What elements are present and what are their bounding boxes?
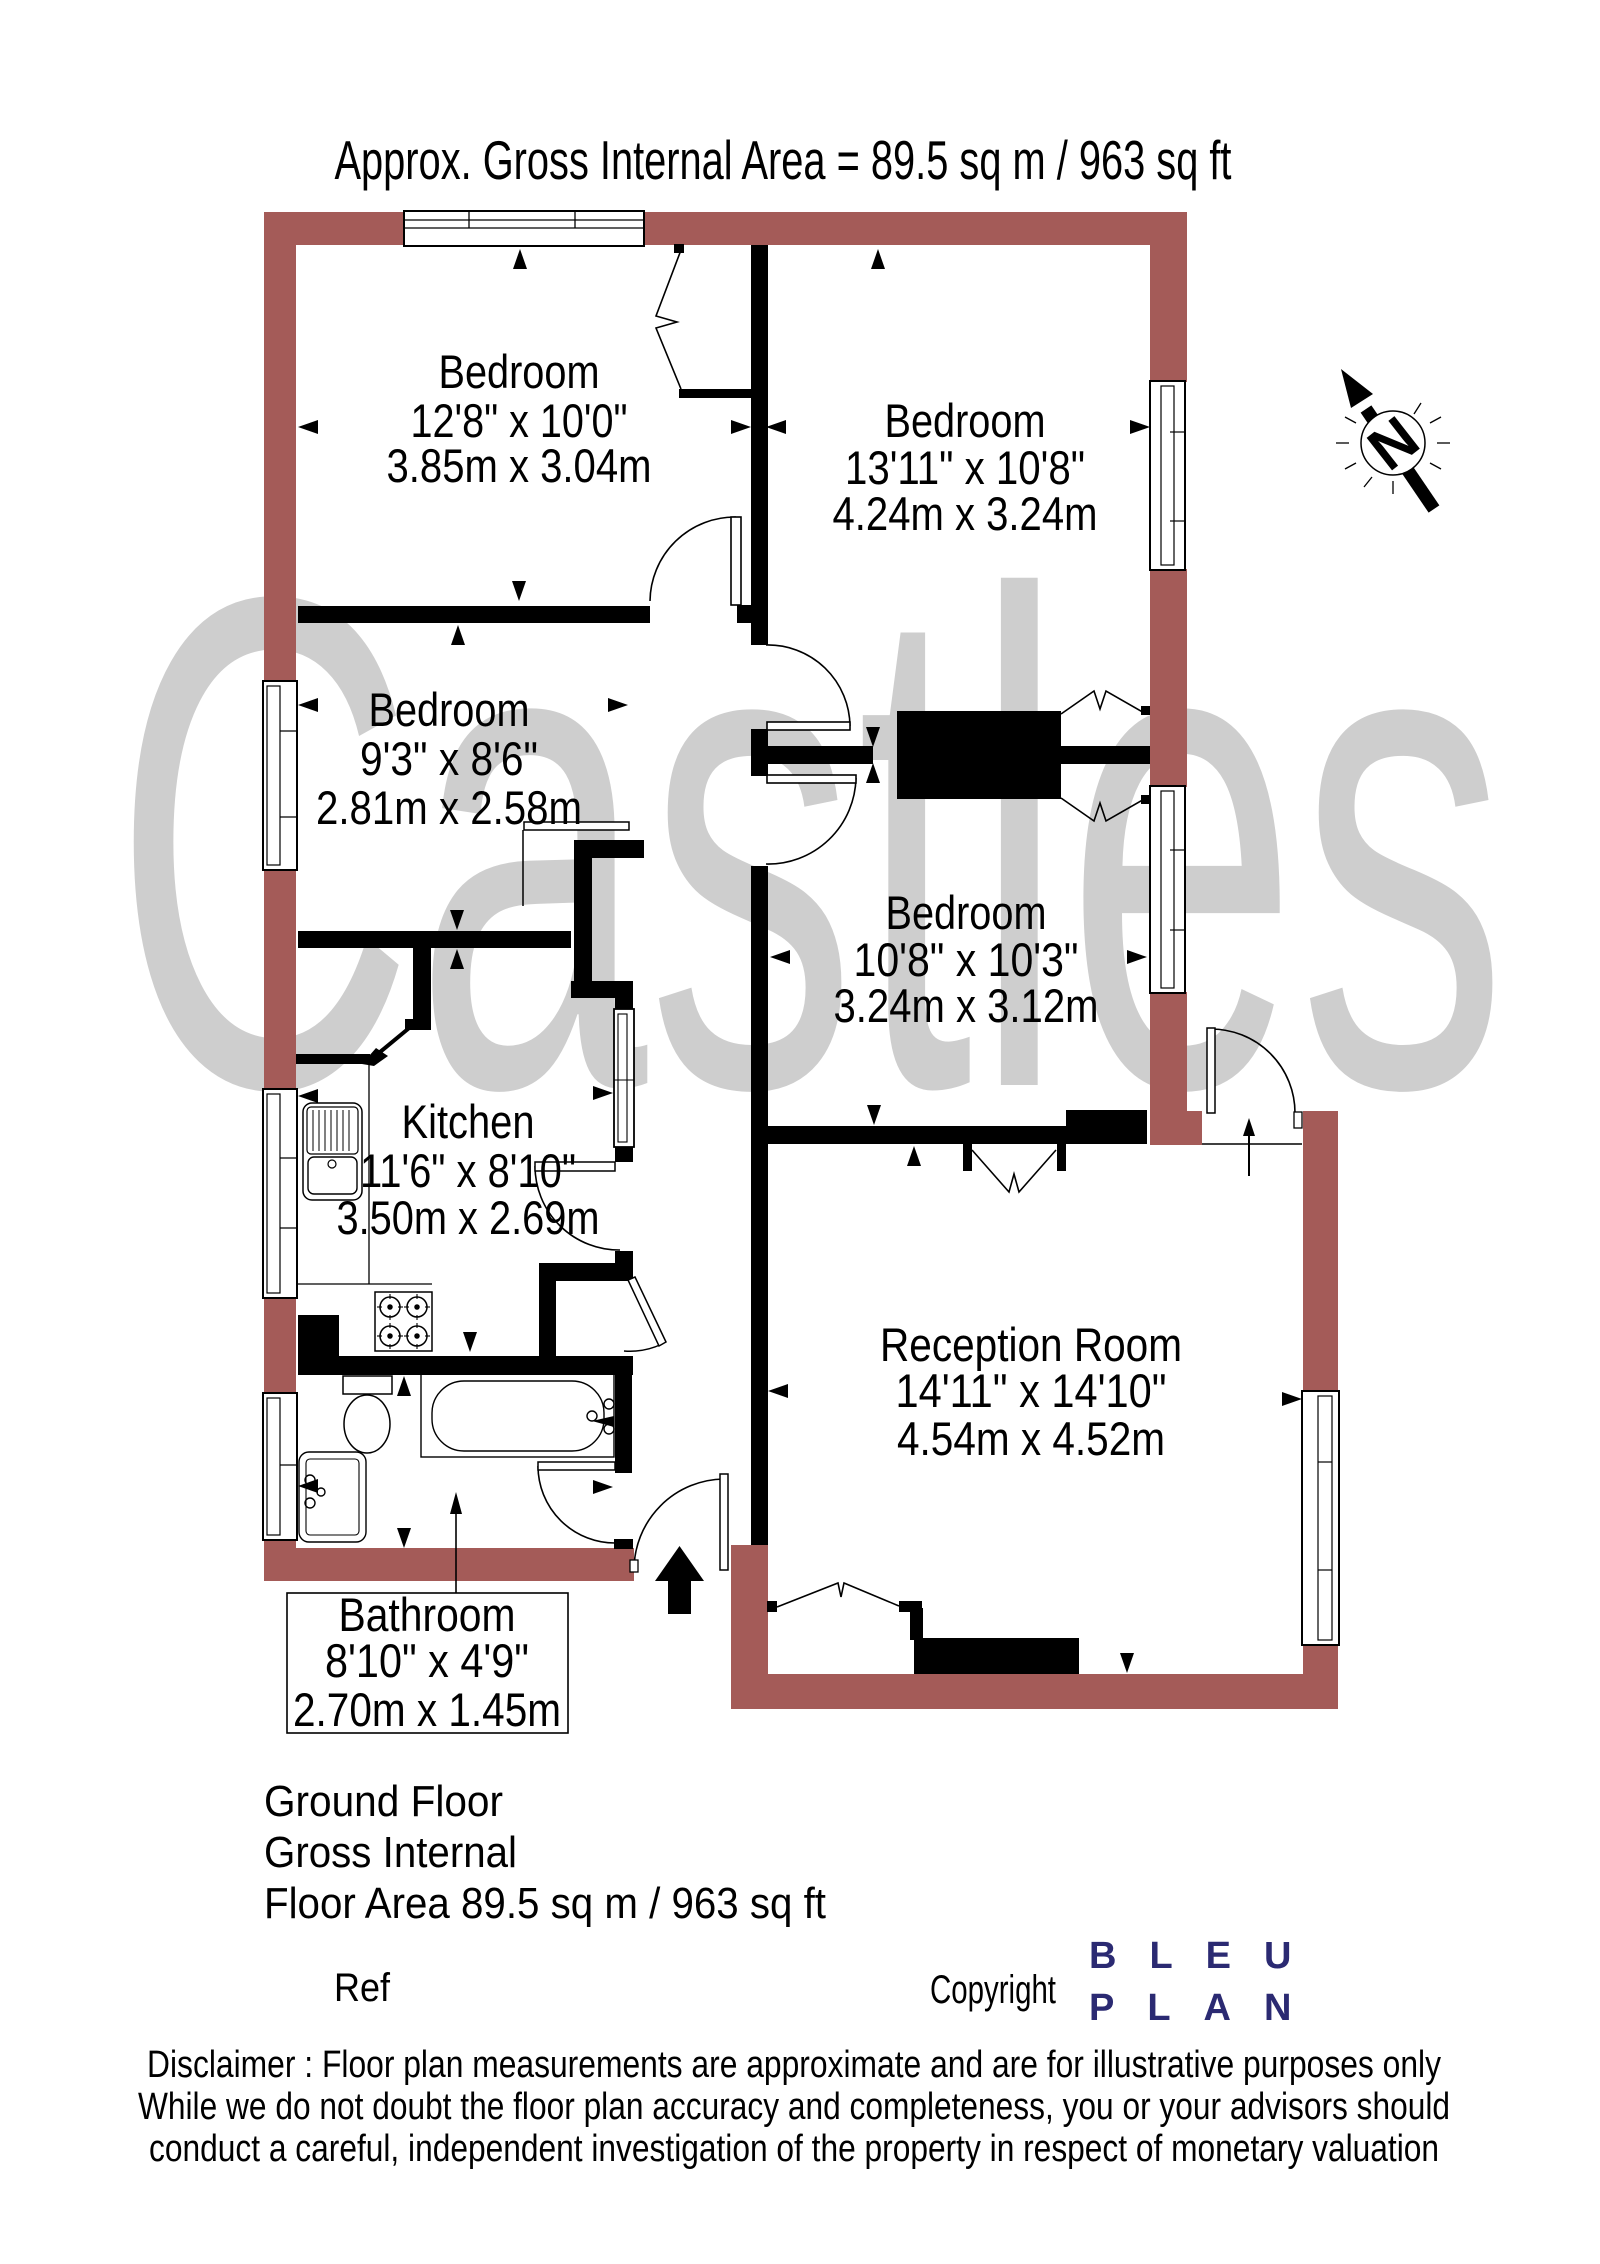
svg-text:PLAN: PLAN <box>1089 1987 1324 2029</box>
svg-text:Disclaimer : Floor plan measur: Disclaimer : Floor plan measurements are… <box>147 2044 1441 2086</box>
svg-text:Ground Floor: Ground Floor <box>264 1777 503 1826</box>
svg-text:Gross Internal: Gross Internal <box>264 1828 517 1877</box>
svg-text:2.70m x 1.45m: 2.70m x 1.45m <box>293 1683 561 1736</box>
svg-text:11'6" x 8'10": 11'6" x 8'10" <box>360 1144 576 1197</box>
svg-text:While we do not doubt the floo: While we do not doubt the floor plan acc… <box>138 2086 1450 2128</box>
svg-text:9'3" x 8'6": 9'3" x 8'6" <box>360 732 538 785</box>
svg-text:Bedroom: Bedroom <box>885 394 1046 447</box>
svg-text:14'11" x 14'10": 14'11" x 14'10" <box>896 1364 1167 1417</box>
svg-text:conduct a careful, independent: conduct a careful, independent investiga… <box>149 2128 1439 2170</box>
svg-text:Ref: Ref <box>334 1966 391 2010</box>
svg-text:3.85m x 3.04m: 3.85m x 3.04m <box>387 439 652 492</box>
svg-text:Copyright: Copyright <box>930 1968 1056 2012</box>
svg-text:Floor Area 89.5 sq m / 963 sq: Floor Area 89.5 sq m / 963 sq ft <box>264 1879 826 1928</box>
svg-text:Kitchen: Kitchen <box>402 1095 535 1148</box>
svg-text:Approx. Gross Internal Area =: Approx. Gross Internal Area = 89.5 sq m … <box>335 129 1232 191</box>
svg-text:4.54m x 4.52m: 4.54m x 4.52m <box>897 1412 1165 1465</box>
svg-text:Bedroom: Bedroom <box>369 683 530 736</box>
svg-text:8'10" x 4'9": 8'10" x 4'9" <box>325 1634 529 1687</box>
svg-text:2.81m x 2.58m: 2.81m x 2.58m <box>316 781 582 834</box>
svg-text:3.24m x 3.12m: 3.24m x 3.12m <box>834 979 1099 1032</box>
svg-text:4.24m x 3.24m: 4.24m x 3.24m <box>833 487 1098 540</box>
svg-text:Bedroom: Bedroom <box>886 886 1047 939</box>
svg-text:3.50m x 2.69m: 3.50m x 2.69m <box>337 1191 600 1244</box>
svg-text:BLEU: BLEU <box>1089 1935 1324 1977</box>
svg-text:Bedroom: Bedroom <box>439 345 600 398</box>
